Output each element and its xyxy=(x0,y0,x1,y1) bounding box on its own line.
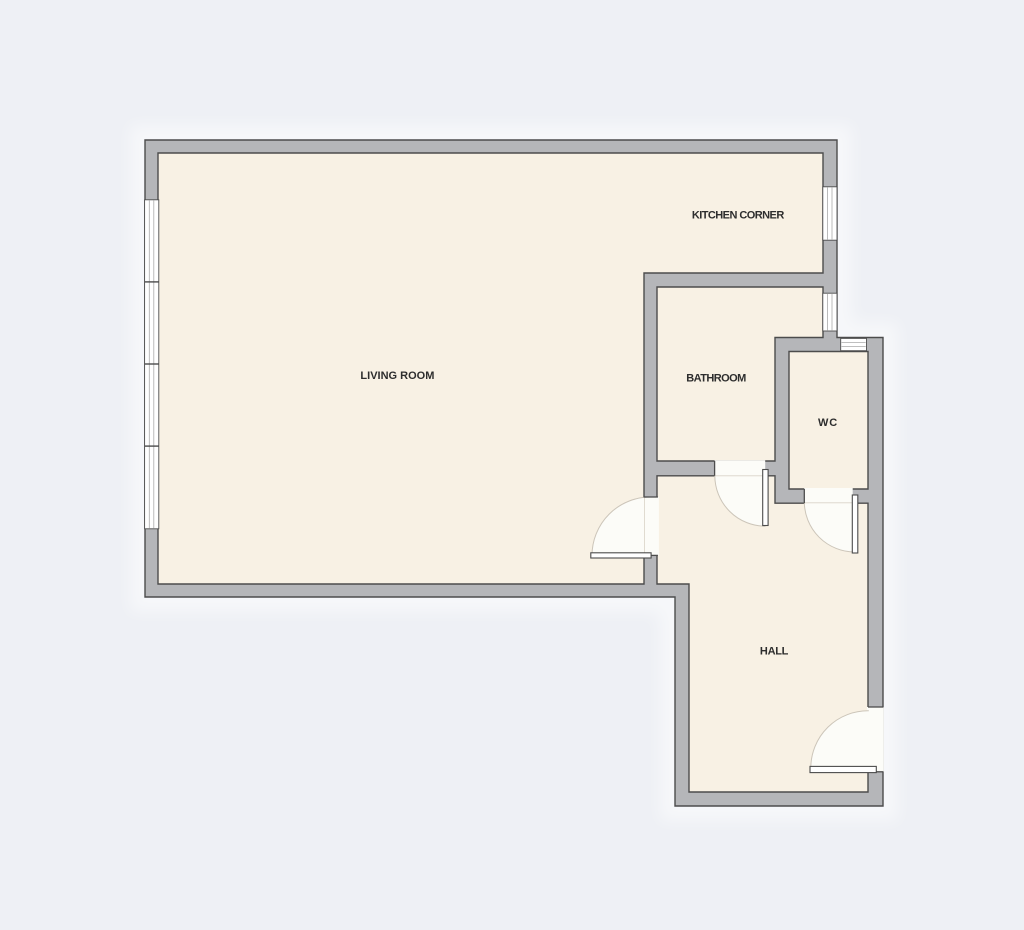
svg-text:HALL: HALL xyxy=(760,646,789,658)
svg-text:WC: WC xyxy=(818,417,838,429)
svg-text:BATHROOM: BATHROOM xyxy=(686,373,746,385)
svg-text:LIVING ROOM: LIVING ROOM xyxy=(360,370,434,382)
svg-text:KITCHEN CORNER: KITCHEN CORNER xyxy=(692,210,785,222)
